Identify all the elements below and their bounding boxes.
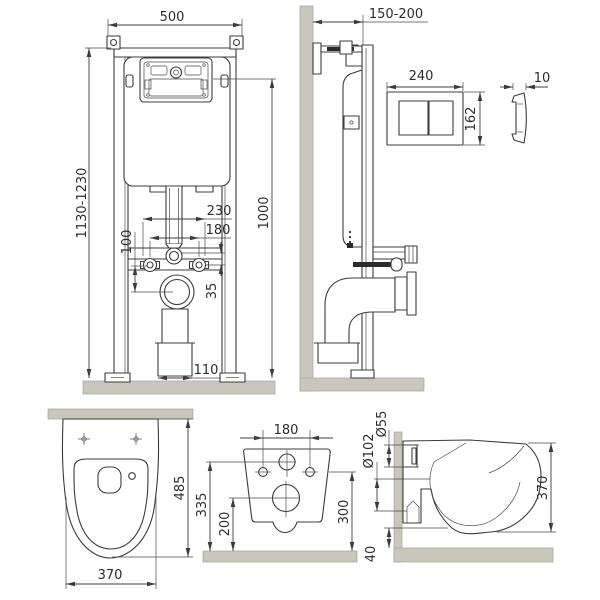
dim-frame-height-adjustable: 1130-1230	[75, 168, 90, 239]
dim-anchor-outer-width: 230	[207, 204, 232, 219]
floor-section	[300, 378, 424, 391]
dim-drain-width: 110	[194, 363, 219, 378]
floor-section	[203, 551, 357, 562]
dim-frame-width: 500	[160, 10, 185, 25]
inlet-pipe-cap	[412, 448, 416, 464]
floor-section	[394, 548, 553, 562]
wall-section	[394, 432, 402, 562]
dim-inlet-diameter: Ø55	[375, 411, 390, 438]
access-panel	[140, 58, 212, 102]
dim-plate-thickness: 10	[534, 71, 551, 86]
dim-plate-width: 240	[409, 69, 434, 84]
water-inlet-port	[166, 248, 182, 264]
wall-section	[300, 6, 313, 391]
cistern-profile	[343, 70, 362, 248]
dim-bowl-height: 370	[536, 476, 551, 501]
dim-plate-height: 162	[464, 107, 479, 132]
dim-anchor-spacing: 180	[206, 223, 231, 238]
dim-outlet-height: 200	[218, 512, 233, 537]
dim-inlet-to-anchor: 35	[205, 283, 220, 300]
dim-frame-height: 1000	[257, 196, 272, 229]
dim-bolt-spacing: 180	[274, 423, 299, 438]
dim-depth-adjustable: 150-200	[369, 7, 423, 22]
floor-section	[83, 381, 275, 394]
wall-section	[48, 409, 193, 419]
flush-pipe	[166, 186, 182, 248]
technical-drawing-sheet: 500 1130-1230 1000 230 180 100	[0, 0, 600, 600]
dim-gap-under-rim: 40	[364, 546, 379, 563]
drawing-canvas: 500 1130-1230 1000 230 180 100	[0, 0, 600, 600]
dim-bowl-depth: 485	[173, 476, 188, 501]
dim-anchor-to-drain: 100	[120, 230, 135, 255]
dim-bolt-height: 300	[337, 500, 352, 525]
dim-outlet-diameter: Ø102	[362, 433, 377, 468]
flush-plate-front	[387, 92, 463, 145]
dim-inlet-height: 335	[195, 493, 210, 518]
dim-bowl-width: 370	[98, 568, 123, 583]
